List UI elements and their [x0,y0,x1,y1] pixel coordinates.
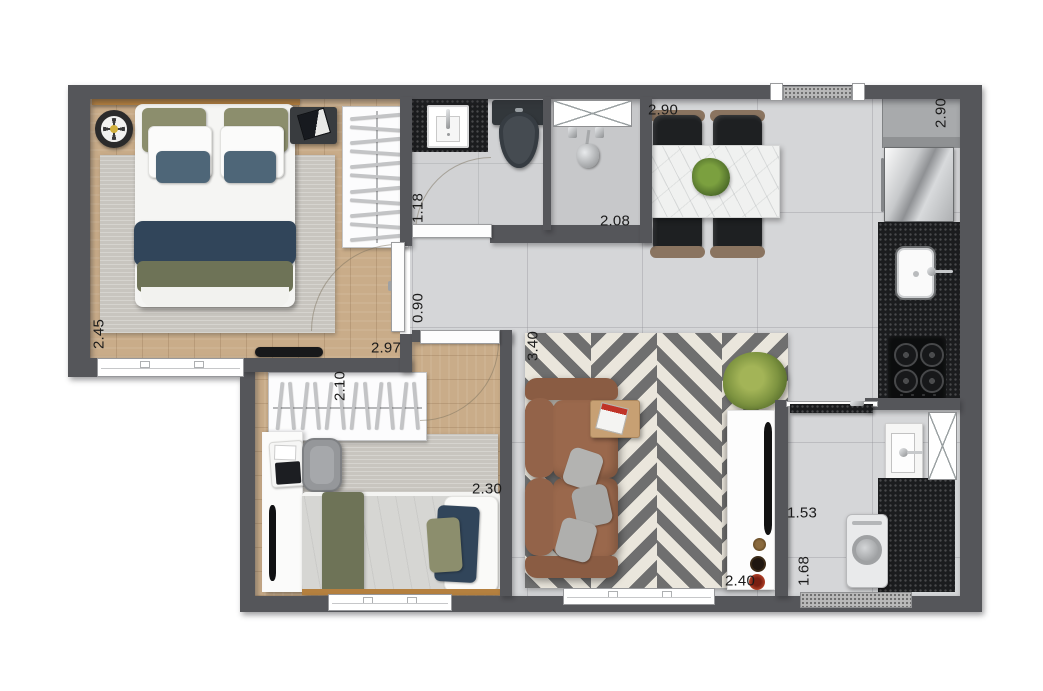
entry-jamb [770,83,783,101]
window-tick [662,591,672,598]
dim-hallway-width: 0.90 [411,293,426,323]
laundry-threshold [800,592,912,608]
wall [543,97,551,230]
bathroom-window [553,100,632,127]
bedroom2-window [328,594,452,611]
wall [400,334,412,372]
door-handle-icon [388,281,392,291]
floor-plan: 2.45 2.97 1.18 2.08 0.90 2.90 2.90 3.40 … [0,0,1043,691]
dim-laundry-depth: 1.68 [797,556,812,586]
dim-bedroom1-width: 2.45 [92,319,107,349]
dim-bedroom2-closet: 2.10 [333,371,348,401]
entry-threshold [783,86,852,99]
dim-dining-width: 2.90 [648,103,678,118]
laundry-window [928,412,957,480]
wall [775,400,788,596]
entry-jamb [852,83,865,101]
wall [640,97,652,243]
dim-bedroom1-length: 2.97 [371,341,401,356]
dim-living-length: 3.40 [526,331,541,361]
bedroom2-door [420,330,500,344]
interior-walls [0,0,1043,691]
window-tick [407,597,417,604]
bathroom-door [412,224,492,238]
dim-bathroom-width: 1.18 [411,193,426,223]
wall [242,358,412,372]
dim-bedroom2-width: 2.30 [472,482,502,497]
wall [500,330,512,596]
window-tick [608,591,618,598]
window-tick [140,361,150,368]
window-tick [194,361,204,368]
dim-laundry-width: 1.53 [787,506,817,521]
dim-bathroom-length: 2.08 [600,214,630,229]
window-tick [363,597,373,604]
dim-kitchen-depth: 2.90 [934,98,949,128]
sliding-door-handle [850,401,864,406]
wall [412,330,420,342]
wall [400,97,412,246]
dim-living-width: 2.40 [725,574,755,589]
living-window [563,588,715,605]
bedroom1-door [391,242,405,332]
wall [865,398,960,410]
bedroom1-window [97,358,244,377]
